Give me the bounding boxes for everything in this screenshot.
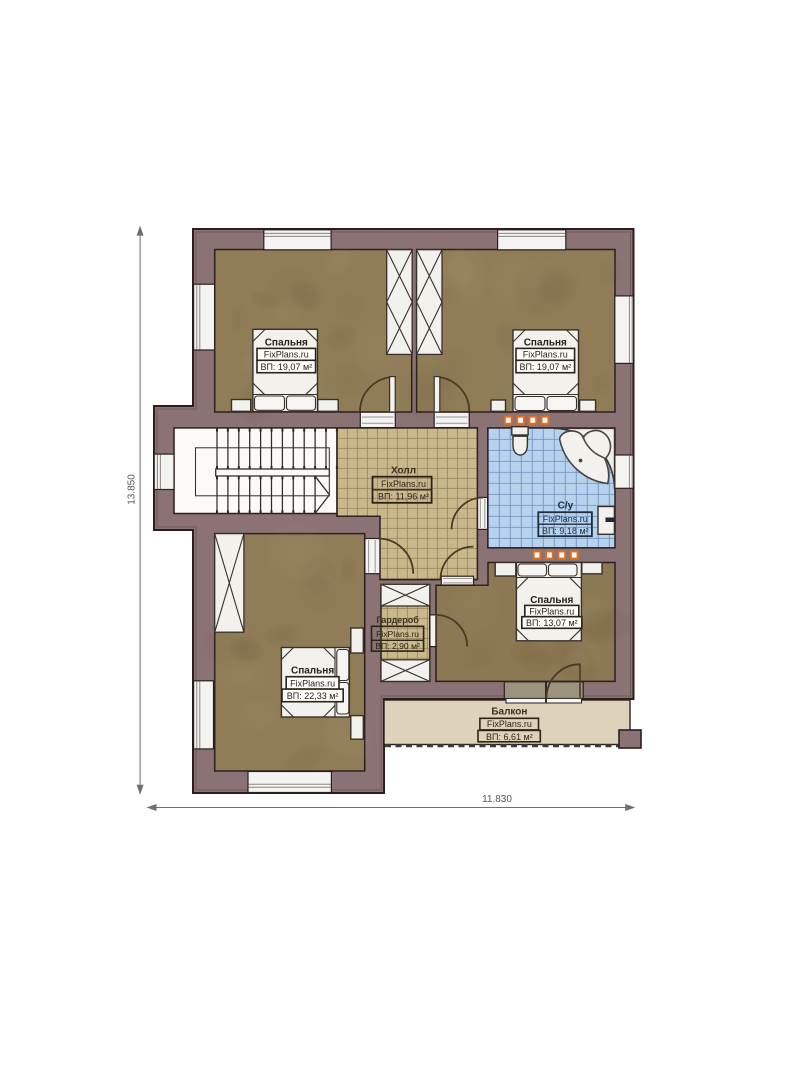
svg-text:Спальня: Спальня <box>530 595 573 606</box>
svg-text:ВП: 9,18 м²: ВП: 9,18 м² <box>542 526 589 536</box>
svg-text:ВП: 2,90 м²: ВП: 2,90 м² <box>375 641 420 651</box>
svg-text:FixPlans.ru: FixPlans.ru <box>523 350 568 360</box>
svg-text:С/у: С/у <box>558 500 574 511</box>
svg-text:ВП: 6,61 м²: ВП: 6,61 м² <box>486 732 533 742</box>
svg-text:FixPlans.ru: FixPlans.ru <box>290 678 335 688</box>
svg-text:ВП: 19,07 м²: ВП: 19,07 м² <box>519 362 571 372</box>
svg-text:ВП: 19,07 м²: ВП: 19,07 м² <box>260 362 312 372</box>
svg-text:FixPlans.ru: FixPlans.ru <box>543 514 588 524</box>
svg-text:Спальня: Спальня <box>524 337 567 348</box>
svg-text:11.830: 11.830 <box>482 794 512 805</box>
svg-text:ВП: 11,96 м²: ВП: 11,96 м² <box>378 492 429 502</box>
svg-text:Холл: Холл <box>391 466 416 477</box>
svg-text:FixPlans.ru: FixPlans.ru <box>264 350 309 360</box>
svg-text:FixPlans.ru: FixPlans.ru <box>529 606 574 616</box>
svg-text:FixPlans.ru: FixPlans.ru <box>376 629 419 639</box>
svg-text:Спальня: Спальня <box>265 337 308 348</box>
svg-text:13.850: 13.850 <box>127 474 138 505</box>
svg-text:Балкон: Балкон <box>491 706 527 717</box>
svg-text:Спальня: Спальня <box>291 666 334 677</box>
svg-text:Гардероб: Гардероб <box>376 615 419 625</box>
svg-text:FixPlans.ru: FixPlans.ru <box>381 479 426 489</box>
svg-text:ВП: 13,07 м²: ВП: 13,07 м² <box>526 618 578 628</box>
svg-text:ВП: 22,33 м²: ВП: 22,33 м² <box>287 691 339 701</box>
svg-text:FixPlans.ru: FixPlans.ru <box>487 719 532 729</box>
